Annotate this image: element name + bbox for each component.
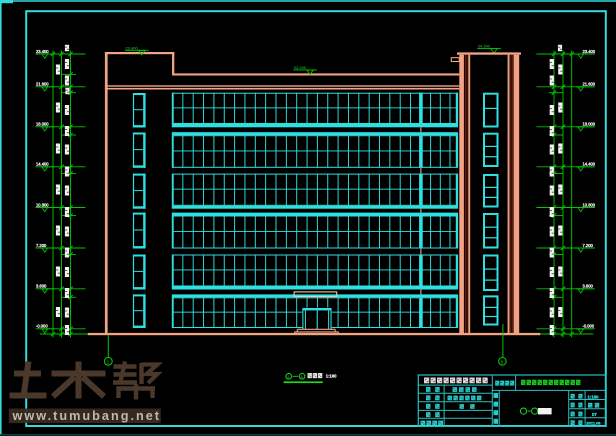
svg-text:23.400: 23.400	[36, 49, 49, 54]
svg-text:1:100: 1:100	[588, 394, 600, 399]
svg-text:22.200: 22.200	[294, 65, 307, 70]
svg-text:7.200: 7.200	[583, 243, 594, 248]
svg-text:www.tumubang.net: www.tumubang.net	[12, 409, 162, 423]
svg-text:24.300: 24.300	[478, 44, 491, 49]
svg-text:23.400: 23.400	[583, 49, 596, 54]
svg-text:14.400: 14.400	[583, 162, 596, 167]
svg-text:1: 1	[287, 375, 289, 379]
svg-text:10.800: 10.800	[36, 202, 49, 207]
svg-text:21.600: 21.600	[36, 82, 49, 87]
svg-text:2011.06: 2011.06	[586, 421, 601, 426]
svg-text:6: 6	[301, 375, 303, 379]
svg-text:1:100: 1:100	[326, 374, 337, 379]
svg-text:21.600: 21.600	[583, 82, 596, 87]
svg-text:-0.000: -0.000	[36, 324, 48, 329]
svg-text:10.800: 10.800	[583, 202, 596, 207]
svg-text:18.000: 18.000	[583, 122, 596, 127]
svg-text:-0.000: -0.000	[583, 324, 595, 329]
svg-text:3.600: 3.600	[583, 284, 594, 289]
svg-text:7.200: 7.200	[36, 243, 47, 248]
svg-text:18.000: 18.000	[36, 122, 49, 127]
svg-text:07: 07	[592, 412, 597, 417]
svg-text:14.400: 14.400	[36, 162, 49, 167]
svg-text:23.400: 23.400	[126, 45, 139, 50]
svg-text:3.600: 3.600	[36, 284, 47, 289]
